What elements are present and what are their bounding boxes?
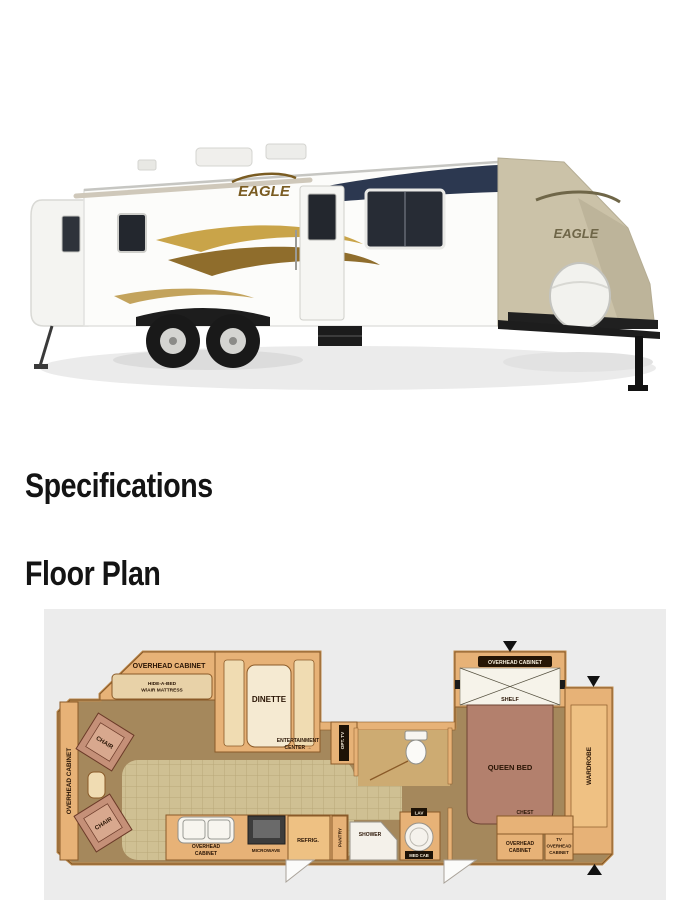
overhead-cabinet-left-label: OVERHEAD CABINET [66, 748, 73, 814]
roof-ac-units [138, 144, 306, 170]
entertainment-label-2: CENTER → [285, 745, 312, 751]
kitchen-overhead-label-2: CABINET [195, 851, 217, 857]
slide-arrow-down-bed [503, 641, 517, 652]
dinette-slideout: DINETTE [215, 652, 320, 752]
med-cab-label: MED CAB [409, 853, 429, 858]
lav-vanity: LAV MED CAB [400, 808, 440, 860]
propane-tank [550, 263, 610, 329]
trailer-shadow [40, 346, 656, 390]
rear-window [118, 214, 146, 252]
eagle-side-logo-text: EAGLE [238, 183, 291, 200]
bedroom-overhead-label-1: OVERHEAD [506, 841, 535, 847]
slide-arrow-down-wardrobe [587, 676, 600, 687]
toilet [405, 731, 427, 764]
kitchen-sink [178, 817, 234, 843]
microwave [248, 816, 285, 844]
lav-label: LAV [415, 811, 425, 816]
pantry: PANTRY [332, 816, 347, 860]
sofa-slideout: OVERHEAD CABINET HIDE-A-BED W/AIR MATTRE… [100, 652, 215, 700]
entry-step [318, 326, 362, 346]
overhead-cabinet-left: OVERHEAD CABINET [60, 702, 78, 860]
trailer-photo: EAGLE EAGLE [18, 88, 663, 403]
tv-overhead-cabinet: TV OVERHEAD CABINET [545, 834, 573, 860]
entertainment-label-1: ENTERTAINMENT [277, 738, 319, 744]
hide-a-bed-label-1: HIDE-A-BED [148, 681, 177, 687]
kitchen-counter: OVERHEAD CABINET MICROWAVE REFRIG. PANTR… [166, 815, 348, 860]
floorplan-image: OVERHEAD CABINET CHAIR CHAIR OVERHEAD CA… [44, 609, 666, 900]
eagle-front-logo-text: EAGLE [554, 226, 599, 241]
opt-tv-label: OPT. TV [340, 731, 345, 749]
tv-overhead-label-3: CABINET [549, 850, 569, 855]
refrig-label: REFRIG. [297, 838, 319, 844]
pantry-label: PANTRY [338, 827, 344, 847]
specifications-heading: Specifications [25, 469, 213, 503]
bed-slideout: OVERHEAD CABINET SHELF [455, 652, 565, 707]
microwave-label: MICROWAVE [252, 848, 281, 853]
shower-label: SHOWER [359, 832, 382, 838]
dinette-label: DINETTE [252, 695, 287, 704]
wardrobe-label: WARDROBE [586, 746, 593, 785]
kitchen-overhead-label-1: OVERHEAD [192, 844, 221, 850]
sofa-overhead-cabinet-label: OVERHEAD CABINET [133, 663, 206, 670]
side-table [88, 772, 105, 798]
queen-bed: QUEEN BED [467, 705, 553, 824]
floorplan-drawing: OVERHEAD CABINET CHAIR CHAIR OVERHEAD CA… [48, 610, 666, 897]
slide-arrow-up-rear [587, 864, 602, 875]
slider-window [366, 190, 444, 248]
floor-plan-heading: Floor Plan [25, 557, 160, 591]
bedroom-overhead-label-2: CABINET [509, 848, 531, 854]
trailer-rear-cap [31, 200, 88, 369]
tv-overhead-label-1: TV [556, 837, 562, 842]
tv-overhead-label-2: OVERHEAD [547, 844, 572, 849]
bed-overhead-cabinet-label: OVERHEAD CABINET [488, 660, 543, 666]
queen-bed-label: QUEEN BED [488, 763, 533, 772]
chest-label: CHEST [517, 810, 534, 816]
bedroom-overhead-cabinet: OVERHEAD CABINET [497, 834, 543, 860]
entry-door [296, 186, 344, 320]
shelf-label: SHELF [501, 697, 519, 703]
hide-a-bed-label-2: W/AIR MATTRESS [141, 688, 183, 694]
